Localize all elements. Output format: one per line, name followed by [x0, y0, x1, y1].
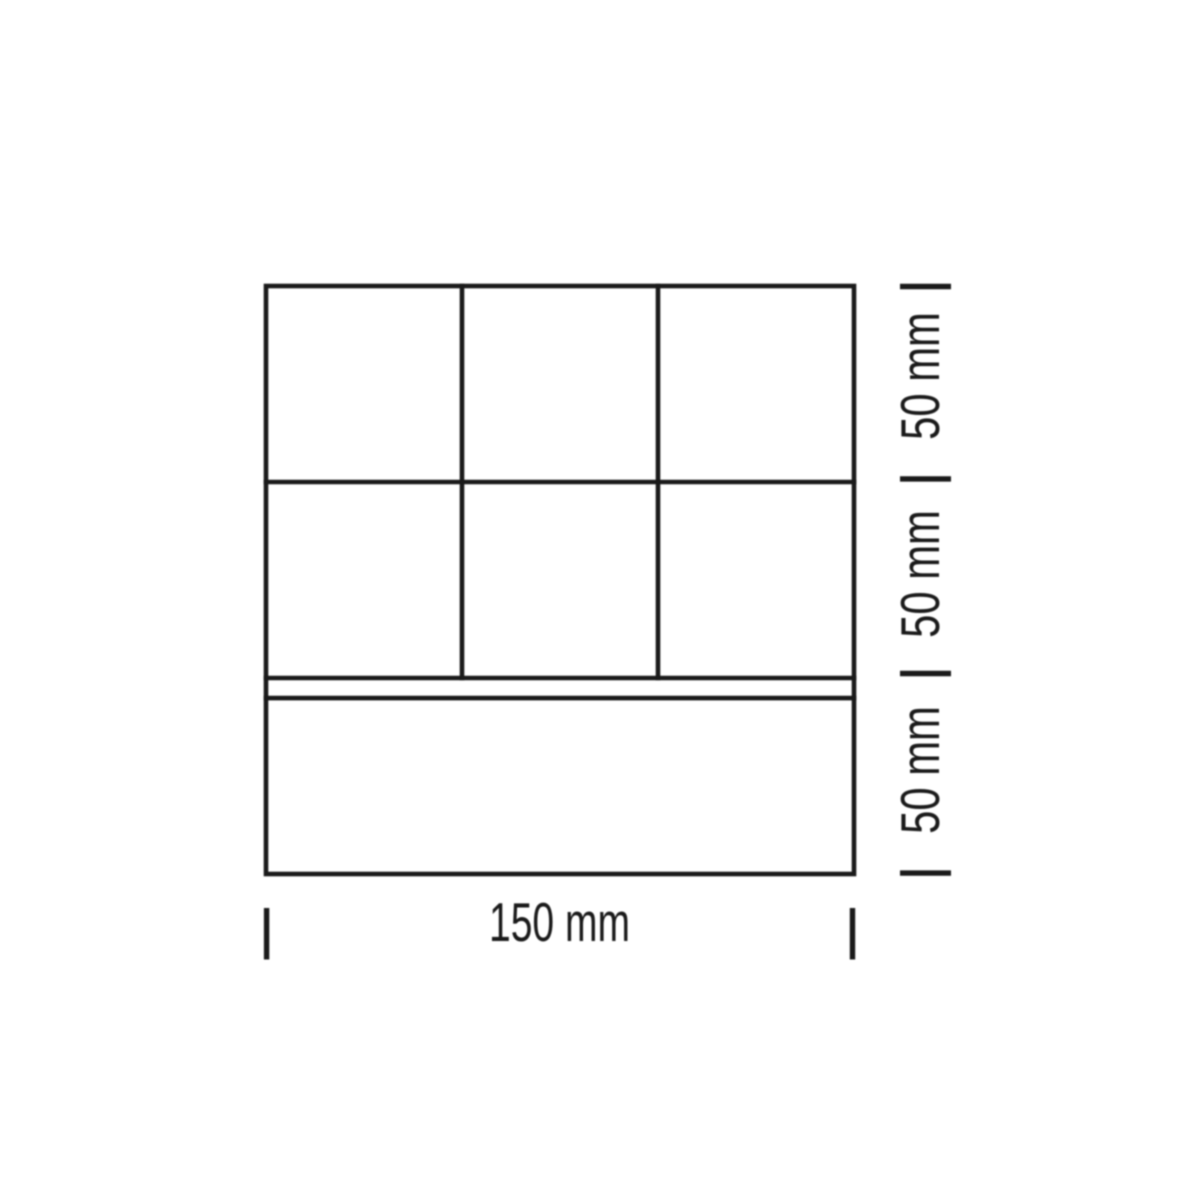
svg-text:50 mm: 50 mm — [891, 510, 952, 638]
svg-text:150 mm: 150 mm — [489, 893, 630, 954]
svg-text:50 mm: 50 mm — [891, 706, 952, 834]
svg-text:50 mm: 50 mm — [891, 312, 952, 440]
